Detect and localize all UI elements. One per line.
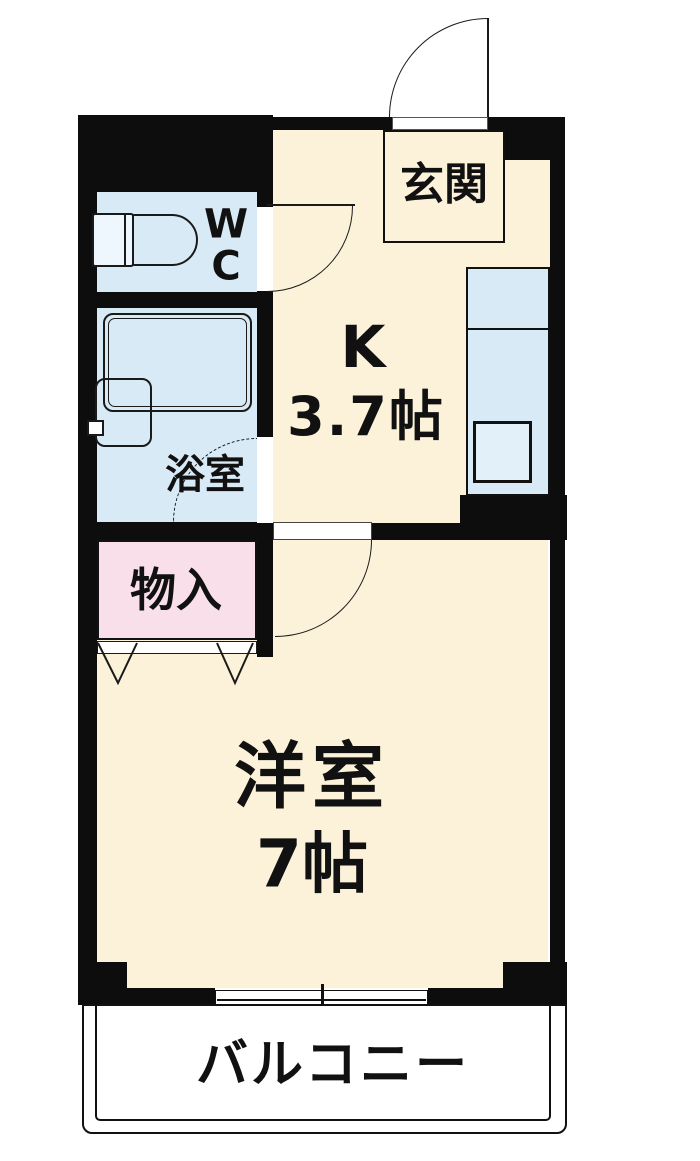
washbasin-icon <box>95 378 152 447</box>
wall-top-left-mass <box>78 115 273 192</box>
entrance-door-icon <box>389 18 488 117</box>
kitchen-label: K <box>341 317 386 377</box>
toilet-bowl-icon <box>132 214 198 266</box>
wall-bottom-a <box>82 988 215 1005</box>
washbasin-tap <box>87 420 104 436</box>
wc-label-line1: W <box>204 204 248 246</box>
counter-divider <box>468 328 548 330</box>
wall-bath-storage-divider <box>78 522 273 540</box>
wall-kitchen-room-a <box>372 523 467 540</box>
wall-wc-bath-divider <box>78 292 273 308</box>
western-room-size-label: 7帖 <box>256 831 368 900</box>
closet-folding-door-icon <box>96 640 258 686</box>
toilet-tank-line <box>124 215 126 265</box>
sink-icon <box>473 421 532 483</box>
wall-bottom-right-chunk <box>503 962 567 1005</box>
wc-label-line2: C <box>204 246 248 288</box>
room-door-threshold <box>273 522 372 540</box>
kitchen-size-label: 3.7帖 <box>287 389 445 445</box>
wall-wet-vertical <box>257 115 273 657</box>
wall-right <box>550 117 565 1005</box>
kitchen-counter-icon <box>466 267 550 496</box>
toilet-icon <box>92 213 134 267</box>
wall-kitchen-room-b <box>460 495 567 540</box>
bath-door-opening <box>257 437 273 523</box>
balcony-label: バルコニー <box>196 1038 470 1092</box>
genkan-label: 玄関 <box>400 162 488 208</box>
storage-label: 物入 <box>130 567 222 615</box>
floorplan-canvas: 玄関 W C 浴室 K 3.7帖 物入 洋室 7帖 バルコニー <box>0 0 700 1161</box>
western-room-label: 洋室 <box>234 740 390 815</box>
entrance-door-threshold <box>392 117 488 130</box>
bath-label: 浴室 <box>165 455 245 497</box>
wall-top-a <box>273 117 392 130</box>
wc-label: W C <box>204 204 248 287</box>
